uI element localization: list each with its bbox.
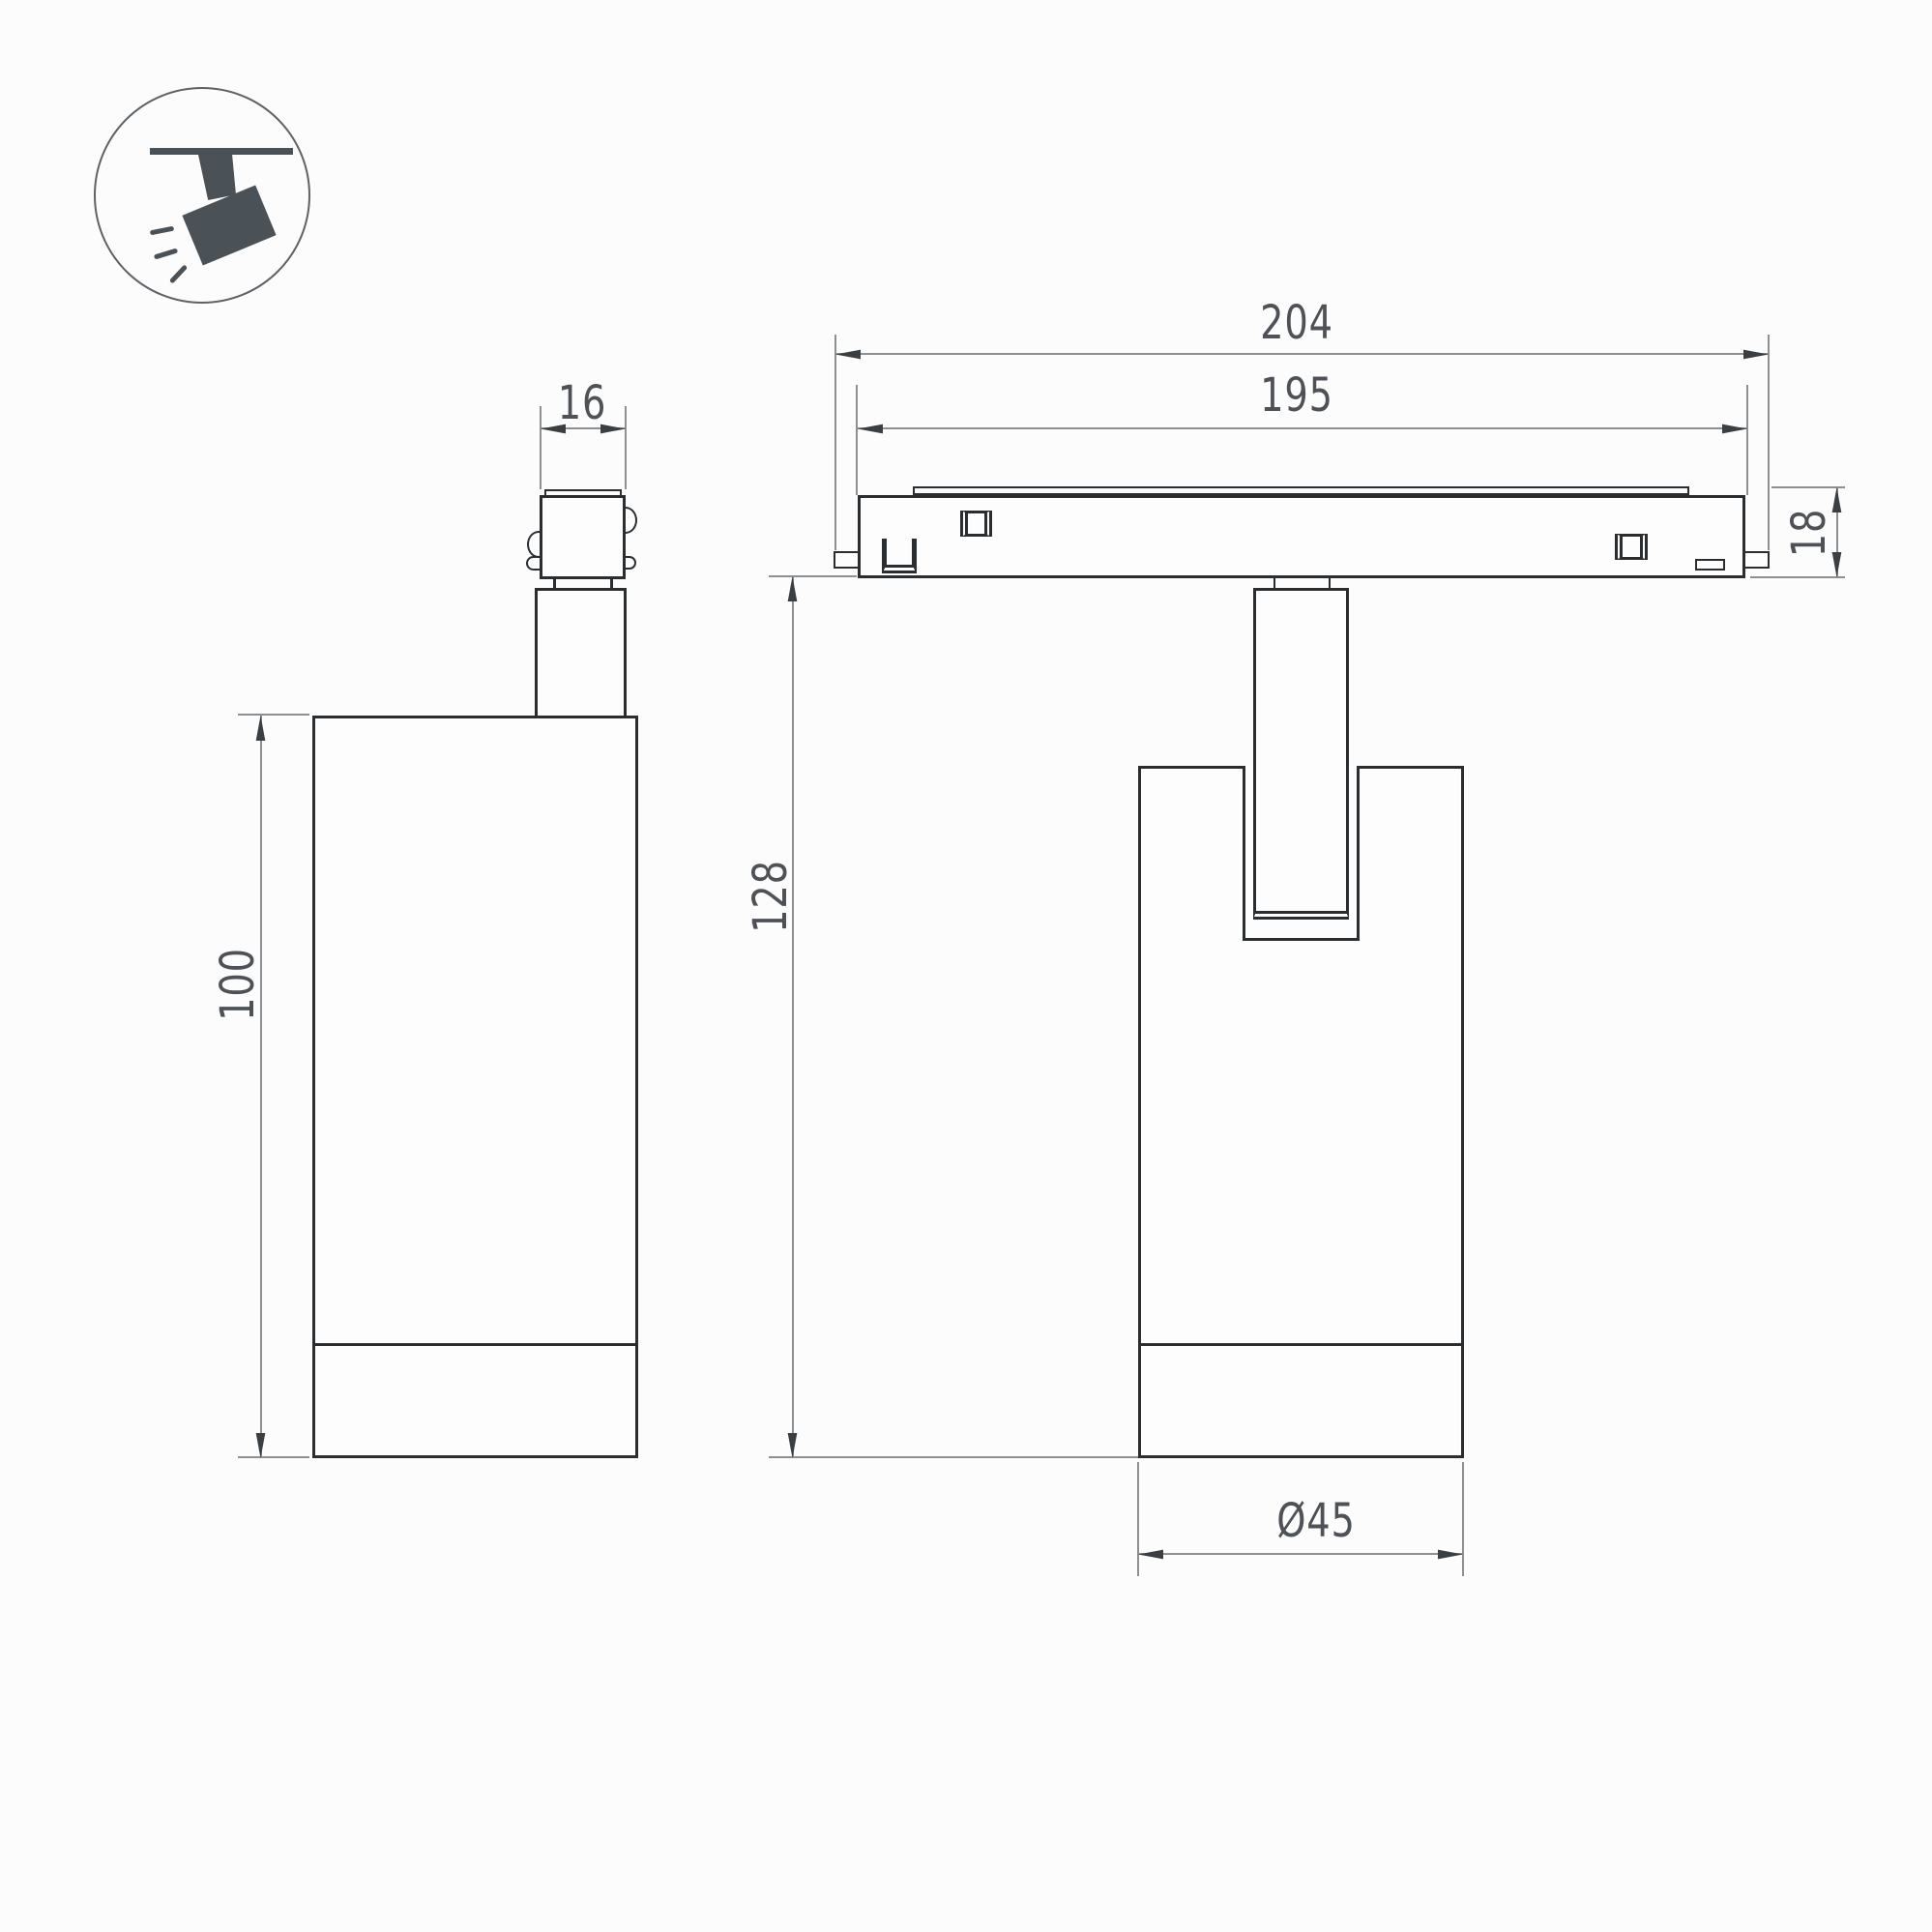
arrowhead-down (787, 1433, 798, 1458)
dim-label-track-height: 18 (1782, 509, 1836, 557)
icon-ceiling-line (150, 148, 293, 155)
dimension-line-195 (858, 427, 1747, 429)
arrowhead-down (255, 1433, 266, 1458)
extension-line (769, 1456, 1138, 1458)
extension-line (540, 406, 542, 489)
extension-line (1746, 385, 1748, 495)
track-rail (858, 495, 1745, 578)
arrowhead-up (255, 716, 266, 741)
dimension-line-204 (836, 353, 1769, 355)
dim-label-body-height: 100 (211, 948, 265, 1021)
body-divider-line (312, 1343, 638, 1346)
dimension-line-45 (1138, 1553, 1463, 1555)
track-top-plate (913, 486, 1689, 495)
track-u-clip (882, 539, 917, 573)
arrowhead-left (1138, 1549, 1163, 1560)
dim-label-overall-length: 204 (1260, 296, 1333, 350)
icon-circle (94, 87, 310, 304)
arrowhead-right (1722, 424, 1747, 434)
dim-label-body-diameter: Ø45 (1276, 1494, 1355, 1548)
arrowhead-left (858, 424, 883, 434)
extension-line (1771, 486, 1845, 488)
extension-line (1768, 335, 1770, 550)
track-connector-side (540, 495, 626, 579)
track-slot (1695, 559, 1725, 571)
track-adapter-nub (1273, 578, 1331, 590)
arrowhead-up (787, 576, 798, 601)
extension-line (834, 335, 836, 550)
extension-line (1137, 1462, 1139, 1576)
extension-line (238, 1456, 309, 1458)
extension-line (1462, 1462, 1464, 1576)
extension-line (769, 575, 857, 577)
track-clip-left (960, 511, 992, 537)
extension-line (856, 385, 858, 495)
body-divider-line (1138, 1343, 1464, 1346)
extension-line (238, 714, 309, 716)
dim-label-track-length: 195 (1260, 368, 1333, 423)
dimension-line-128 (792, 576, 794, 1458)
dimension-line-100 (260, 716, 262, 1458)
dimension-drawing: 16 100 204 195 128 (0, 0, 1932, 1932)
extension-line (625, 406, 627, 489)
dim-label-connector-width: 16 (558, 376, 606, 430)
stem-front (1253, 588, 1349, 920)
dim-label-suspension-height: 128 (744, 860, 798, 933)
lamp-body-side (312, 716, 638, 1458)
track-end-tab-left (834, 551, 858, 569)
arrowhead-right (1743, 349, 1769, 360)
stem-side (535, 588, 627, 718)
track-spotlight-icon (0, 0, 329, 329)
track-end-tab-right (1745, 551, 1770, 569)
track-clip-right (1615, 534, 1648, 560)
arrowhead-left (835, 349, 861, 360)
arrowhead-right (1438, 1549, 1463, 1560)
extension-line (1750, 576, 1845, 578)
